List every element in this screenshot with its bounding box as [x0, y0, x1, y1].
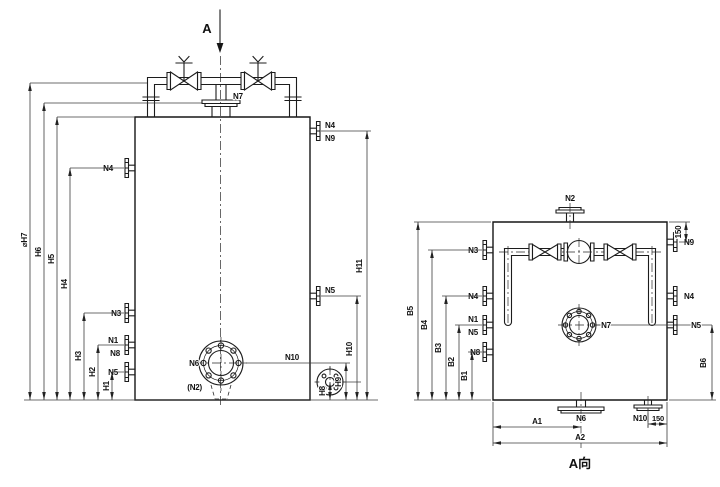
dim-label-b6: B6	[699, 357, 708, 368]
side-right-nozzles: N9 N4 N5	[667, 233, 702, 335]
dim-label-a1: A1	[532, 417, 543, 426]
dim-label-b1: B1	[460, 370, 469, 381]
nozzle-n3	[125, 304, 135, 323]
internal-piping	[499, 238, 661, 326]
label-nozzle-n10-side: N10	[633, 414, 648, 423]
label-nozzle-n4-left: N4	[103, 164, 114, 173]
dim-label-h11: H11	[355, 258, 364, 272]
label-nozzle-n3: N3	[111, 309, 122, 318]
center-fitting	[564, 238, 594, 266]
front-dims-left: ⌀H7 H6 H5 H4 H3 H2 H1	[20, 83, 112, 400]
blueprint-canvas: A N7	[0, 0, 720, 487]
face-flange-n7: N7	[558, 304, 712, 346]
vessel-shell-front	[135, 117, 310, 400]
dim-label-h6: H6	[34, 246, 43, 257]
label-nozzle-n2-hidden: (N2)	[187, 383, 202, 392]
face-flange-n10: N10	[285, 353, 345, 398]
nozzle-n3-side	[483, 241, 493, 260]
right-wall-nozzles: N4 N9 N5	[310, 121, 336, 306]
dim-label-h5: H5	[47, 253, 56, 264]
label-nozzle-n3-side: N3	[468, 246, 479, 255]
view-direction-arrow: A	[202, 10, 223, 53]
nozzle-n8-side	[483, 343, 493, 362]
label-nozzle-n4-left-side: N4	[468, 292, 479, 301]
nozzle-n4-left	[125, 159, 135, 178]
label-nozzle-n5-right: N5	[325, 286, 336, 295]
front-dims-right: H8 H9 H10 H11	[318, 131, 367, 400]
nozzle-n5-right	[310, 287, 320, 306]
nozzle-n2-top: N2	[556, 194, 584, 232]
label-nozzle-n9-side: N9	[684, 238, 695, 247]
side-view-title: A向	[569, 456, 591, 471]
nozzle-n4-left-side	[483, 287, 493, 306]
view-arrow-label: A	[202, 21, 212, 36]
front-view: A N7	[20, 10, 378, 407]
dim-label-h4: H4	[60, 278, 69, 289]
side-dims-right: 150 B6	[674, 222, 712, 400]
arrowhead-down-icon	[217, 43, 224, 53]
label-nozzle-n7-side: N7	[601, 321, 612, 330]
vessel-drawing: A N7	[0, 0, 720, 487]
dim-label-b2: B2	[447, 356, 456, 367]
nozzle-n4-n9-right	[310, 122, 320, 141]
hidden-nozzle-n2	[211, 385, 231, 399]
nozzle-n4-right-side	[667, 287, 677, 306]
dim-label-h1: H1	[102, 380, 111, 391]
side-valve-right	[604, 244, 636, 260]
nozzle-n1-n5-side	[483, 316, 493, 335]
label-nozzle-n4-right: N4	[325, 121, 336, 130]
label-nozzle-n7: N7	[233, 92, 244, 101]
label-nozzle-n1-side: N1	[468, 315, 479, 324]
dim-label-h8: H8	[318, 385, 327, 396]
label-nozzle-n6-side: N6	[576, 414, 587, 423]
label-nozzle-n4-right-side: N4	[684, 292, 695, 301]
label-nozzle-n9: N9	[325, 134, 336, 143]
label-nozzle-n5-left-side: N5	[468, 328, 479, 337]
dim-label-b4: B4	[420, 319, 429, 330]
side-view: N2 N7	[406, 194, 716, 471]
dim-label-h3: H3	[74, 350, 83, 361]
dim-label-a2: A2	[575, 433, 586, 442]
dim-label-b3: B3	[434, 342, 443, 353]
dim-label-h2: H2	[88, 366, 97, 377]
label-nozzle-n1: N1	[108, 336, 119, 345]
dim-label-150-top: 150	[674, 225, 683, 238]
top-piping: N7	[143, 57, 301, 118]
face-flange-n6: N6 (N2)	[187, 337, 247, 399]
dim-label-150-bottom: 150	[652, 414, 664, 423]
label-nozzle-n8: N8	[110, 349, 121, 358]
dim-label-h10: H10	[345, 341, 354, 356]
side-left-nozzles: N3 N4 N1 N5 N8	[468, 241, 493, 362]
left-wall-nozzles: N4 N3 N1 N8 N5	[103, 159, 135, 382]
label-nozzle-n2: N2	[565, 194, 576, 203]
label-nozzle-n5-left: N5	[108, 368, 119, 377]
label-nozzle-n5-right-side: N5	[691, 321, 702, 330]
dim-label-b5: B5	[406, 305, 415, 316]
label-nozzle-n6: N6	[189, 359, 200, 368]
dim-label-h9: H9	[334, 376, 343, 387]
side-dims-left: B5 B4 B3 B2 B1	[406, 222, 472, 400]
label-nozzle-n10: N10	[285, 353, 300, 362]
nozzle-n1-n8	[125, 336, 135, 355]
dim-label-h7: ⌀H7	[20, 232, 29, 247]
nozzle-n5-left	[125, 363, 135, 382]
side-valve-left	[529, 244, 561, 260]
